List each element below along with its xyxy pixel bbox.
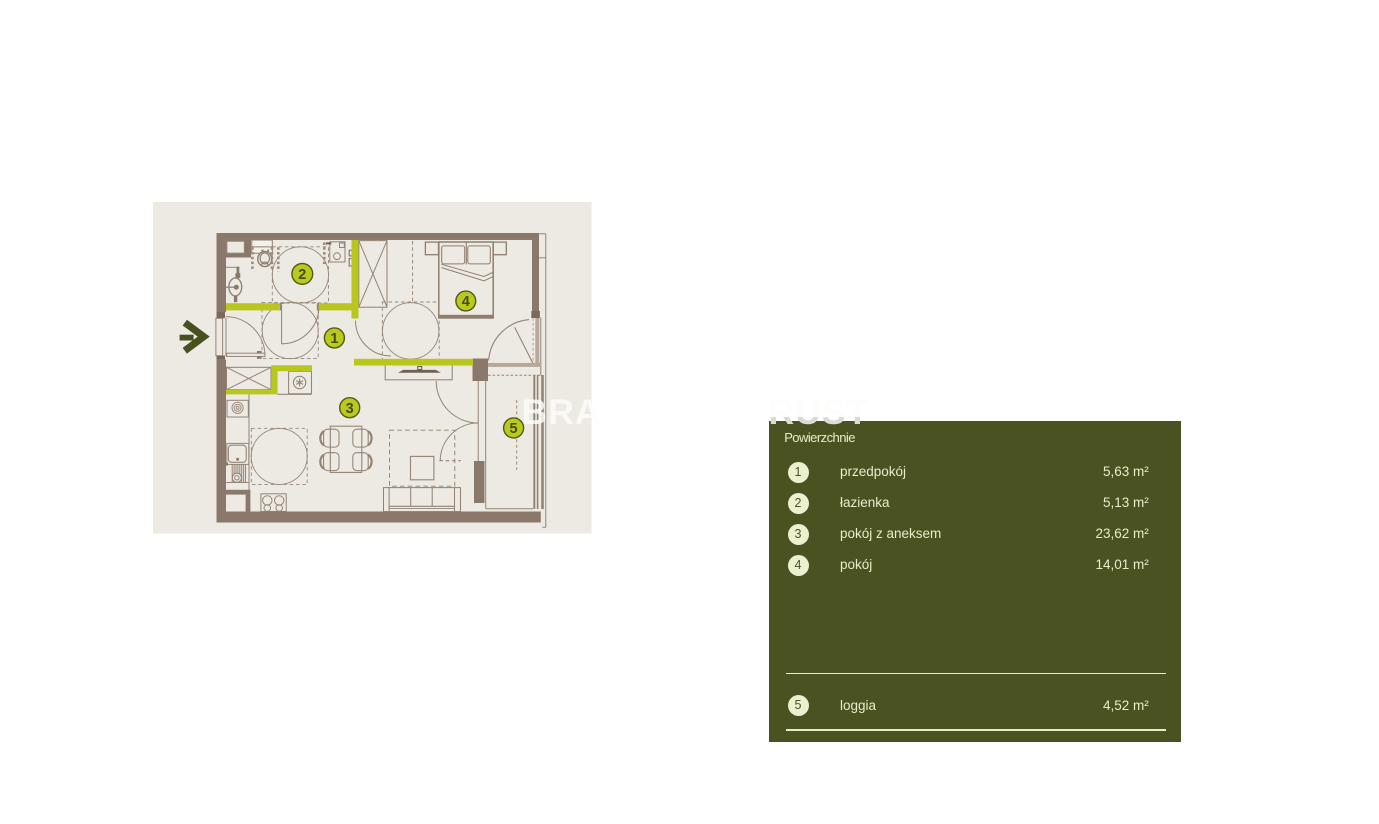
svg-text:4: 4 <box>462 294 470 310</box>
svg-text:1: 1 <box>330 331 338 347</box>
svg-text:5: 5 <box>510 421 518 437</box>
svg-text:2: 2 <box>298 267 306 283</box>
svg-text:3: 3 <box>346 401 354 417</box>
